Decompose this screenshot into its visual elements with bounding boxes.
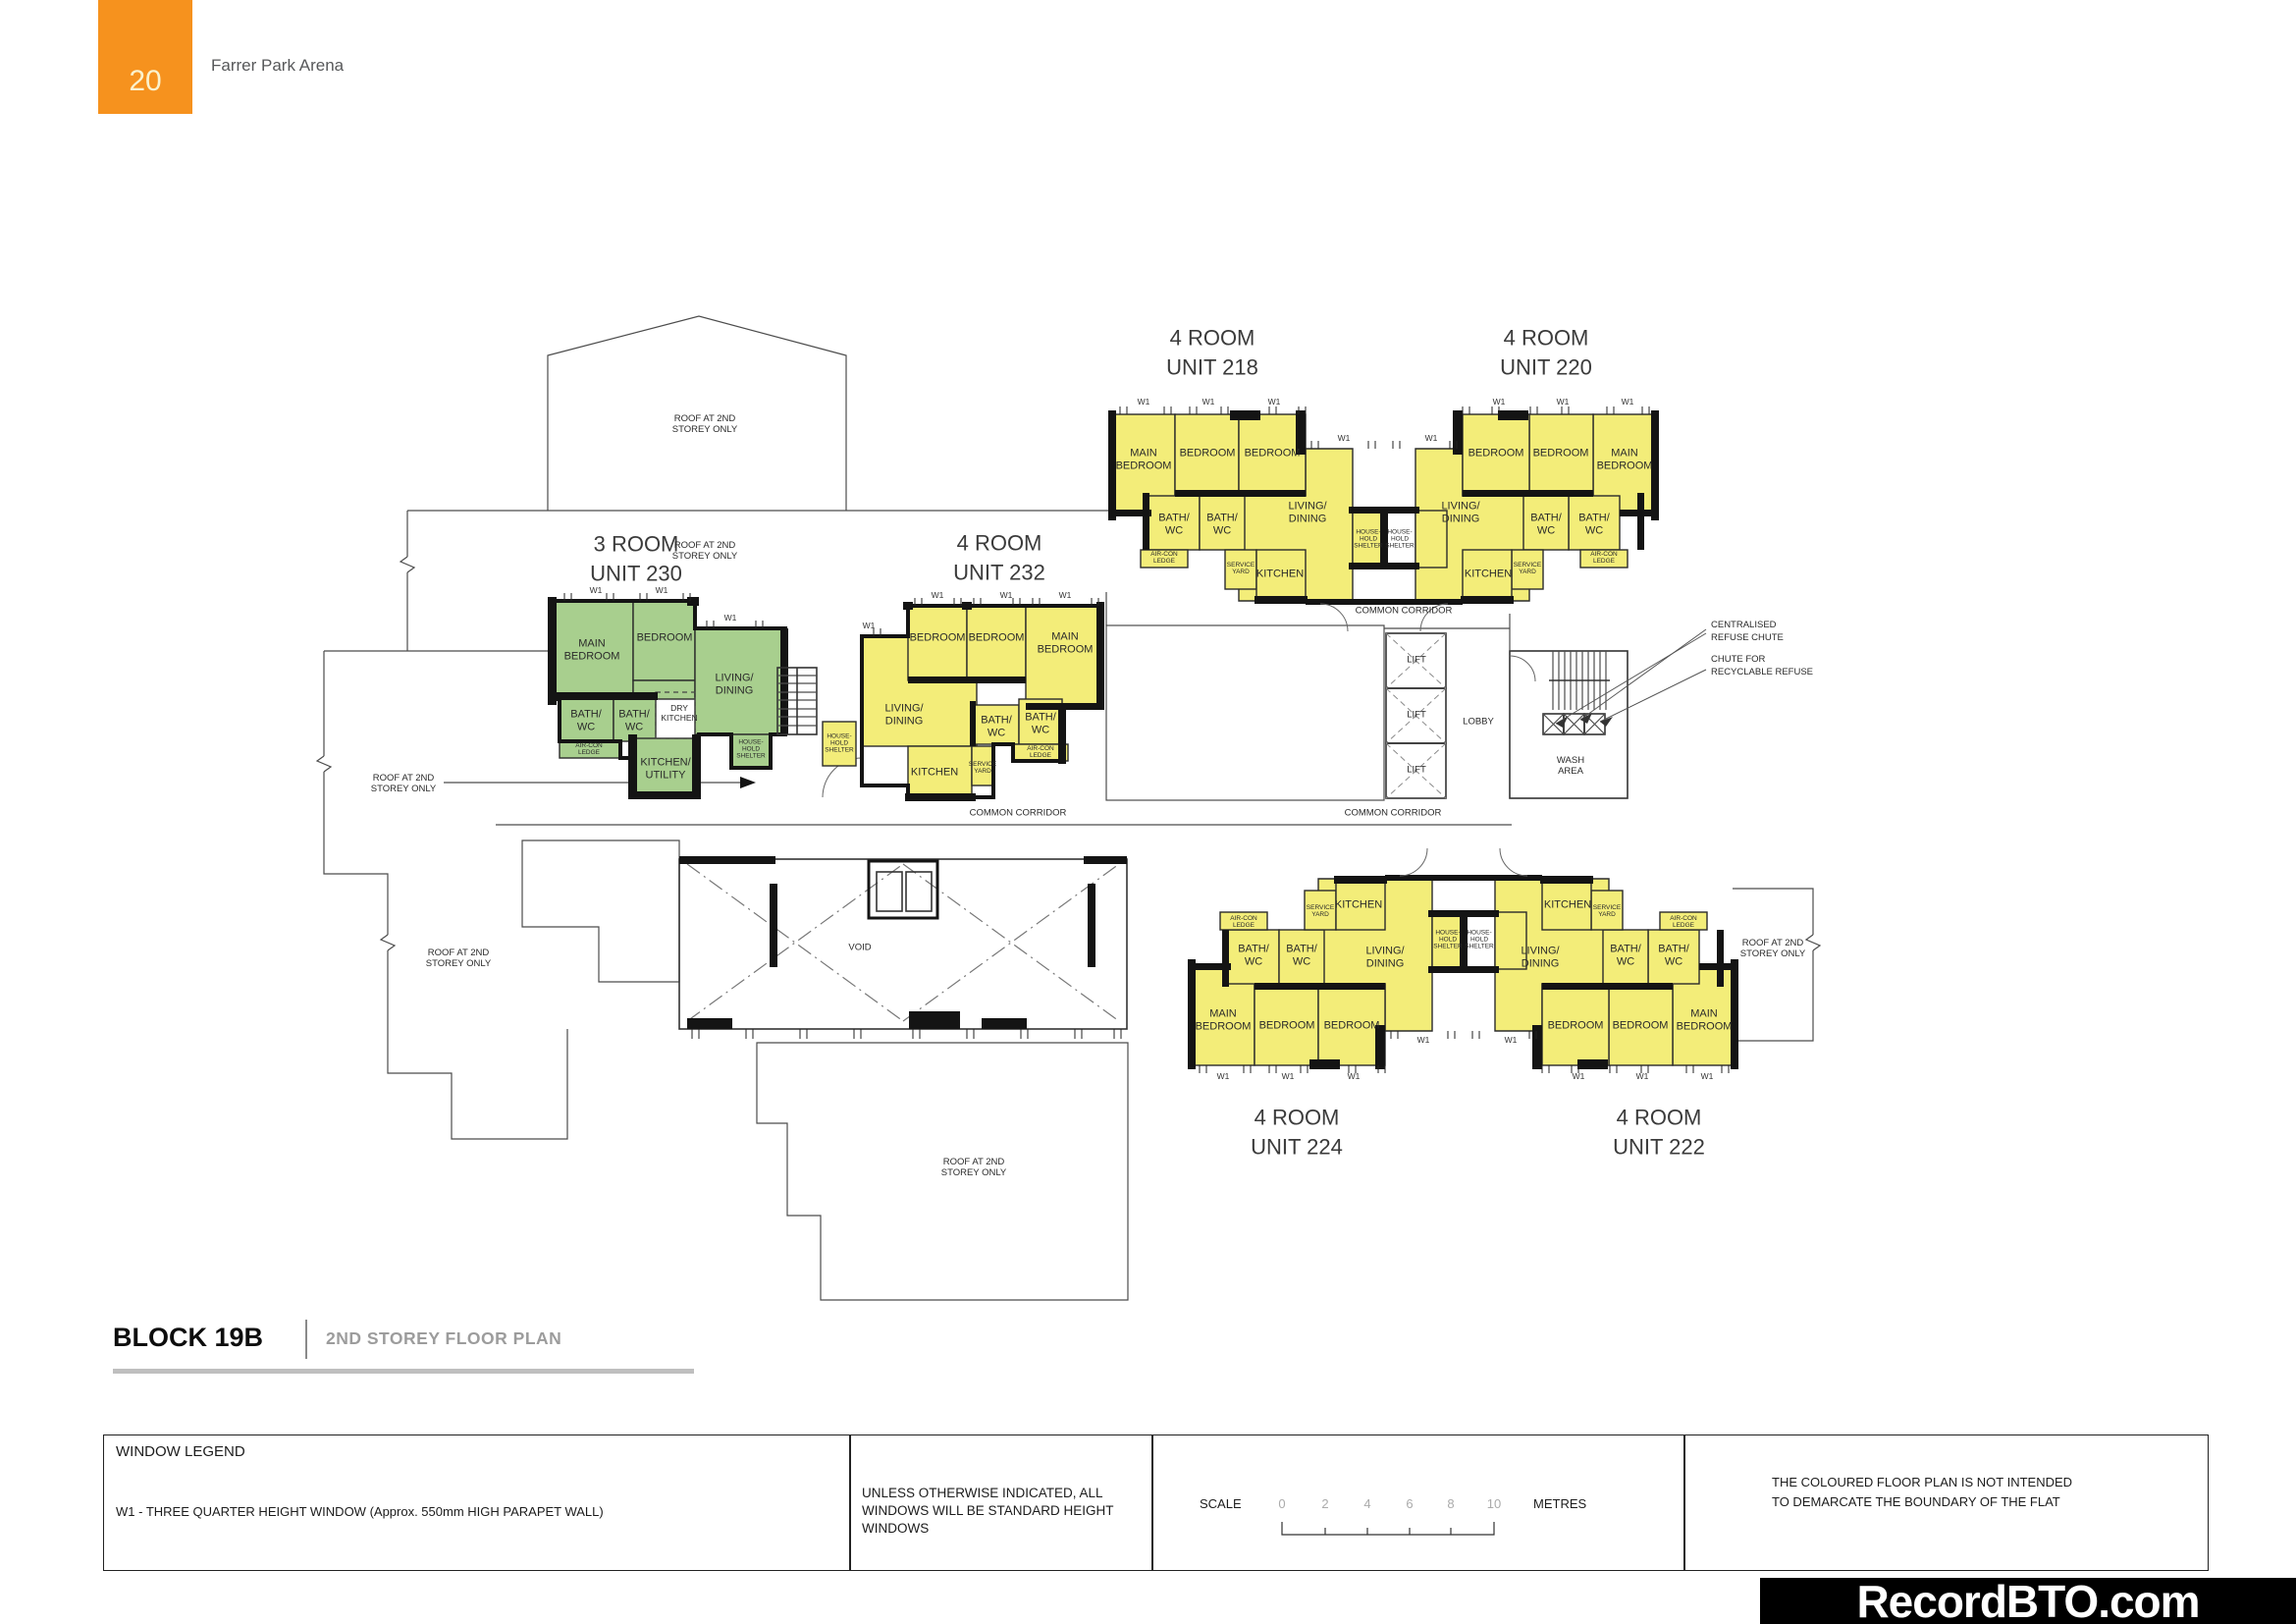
room-label-aircon-ledge: AIR-CON LEDGE	[1590, 551, 1617, 565]
room-label-household-shelter: HOUSE- HOLD SHELTER	[825, 732, 854, 753]
room-label-bedroom: BEDROOM	[1180, 448, 1236, 460]
roof-note: ROOF AT 2ND STOREY ONLY	[672, 541, 738, 563]
common-corridor-label: COMMON CORRIDOR	[1345, 809, 1442, 820]
wash-area-label: WASH AREA	[1557, 756, 1584, 778]
scale-tick: 2	[1321, 1496, 1328, 1511]
room-label-service-yard: SERVICE YARD	[1593, 904, 1621, 918]
room-label-household-shelter: HOUSE- HOLD SHELTER	[1433, 929, 1463, 949]
scale-tick: 4	[1363, 1496, 1370, 1511]
room-label-main-bedroom: MAIN BEDROOM	[1116, 447, 1172, 471]
window-tag: W1	[1701, 1072, 1714, 1082]
unit-title-218: 4 ROOM UNIT 218	[1166, 323, 1258, 381]
room-label-service-yard: SERVICE YARD	[1227, 562, 1255, 575]
lift-label: LIFT	[1407, 766, 1426, 777]
room-label-main-bedroom: MAIN BEDROOM	[1597, 447, 1653, 471]
window-tag: W1	[1417, 1036, 1430, 1046]
unit-type: 4 ROOM	[1251, 1103, 1343, 1132]
room-label-aircon-ledge: AIR-CON LEDGE	[1670, 915, 1696, 929]
room-label-kitchen: KITCHEN	[1544, 899, 1591, 912]
room-label-service-yard: SERVICE YARD	[969, 761, 996, 775]
room-label-bath-wc: BATH/ WC	[1578, 512, 1610, 536]
room-label-bath-wc: BATH/ WC	[570, 708, 602, 732]
window-tag: W1	[1138, 398, 1150, 407]
window-tag: W1	[1425, 434, 1438, 444]
room-label-living-dining: LIVING/ DINING	[884, 702, 923, 727]
roof-note: ROOF AT 2ND STOREY ONLY	[672, 414, 738, 436]
floor-plan-page: 20 Farrer Park Arena 4 ROOM UNIT 218 4 R…	[0, 0, 2296, 1624]
roof-note: ROOF AT 2ND STOREY ONLY	[371, 774, 437, 795]
window-tag: W1	[590, 586, 603, 596]
room-label-bedroom: BEDROOM	[1324, 1020, 1380, 1033]
roof-note: ROOF AT 2ND STOREY ONLY	[426, 948, 492, 970]
unit-block-224-222	[1188, 848, 1738, 1073]
unit-name: UNIT 232	[953, 558, 1045, 587]
floor-plan-drawing	[0, 0, 2296, 1624]
room-label-main-bedroom: MAIN BEDROOM	[1677, 1007, 1733, 1032]
lift-label: LIFT	[1407, 656, 1426, 667]
refuse-chutes	[1543, 714, 1605, 734]
room-label-main-bedroom: MAIN BEDROOM	[1196, 1007, 1252, 1032]
room-label-bath-wc: BATH/ WC	[1286, 943, 1317, 967]
room-label-kitchen: KITCHEN	[1256, 568, 1304, 581]
window-tag: W1	[1573, 1072, 1585, 1082]
plan-title: 2ND STOREY FLOOR PLAN	[326, 1328, 561, 1349]
unit-name: UNIT 218	[1166, 352, 1258, 382]
room-label-bath-wc: BATH/ WC	[1530, 512, 1562, 536]
window-tag: W1	[1505, 1036, 1518, 1046]
window-tag: W1	[1000, 591, 1013, 601]
window-tag: W1	[1268, 398, 1281, 407]
roof-note: ROOF AT 2ND STOREY ONLY	[941, 1158, 1007, 1179]
window-tag: W1	[724, 614, 737, 623]
room-label-main-bedroom: MAIN BEDROOM	[564, 637, 620, 662]
room-label-kitchen-utility: KITCHEN/ UTILITY	[640, 756, 690, 781]
room-label-bedroom: BEDROOM	[1613, 1020, 1669, 1033]
window-tag: W1	[1348, 1072, 1361, 1082]
room-label-kitchen: KITCHEN	[1335, 899, 1382, 912]
room-label-bath-wc: BATH/ WC	[1610, 943, 1641, 967]
window-tag: W1	[932, 591, 944, 601]
window-tag: W1	[1493, 398, 1506, 407]
room-label-aircon-ledge: AIR-CON LEDGE	[1150, 551, 1177, 565]
lift-label: LIFT	[1407, 711, 1426, 722]
watermark-banner: RecordBTO.com	[1760, 1578, 2296, 1624]
scale-tick: 10	[1487, 1496, 1501, 1511]
roof-note: ROOF AT 2ND STOREY ONLY	[1740, 939, 1806, 960]
room-label-service-yard: SERVICE YARD	[1307, 904, 1334, 918]
legend-separator	[1151, 1435, 1153, 1571]
room-label-bedroom: BEDROOM	[969, 632, 1025, 645]
unit-name: UNIT 222	[1613, 1132, 1705, 1162]
boundary-note: THE COLOURED FLOOR PLAN IS NOT INTENDED …	[1772, 1473, 2072, 1511]
scale-tick: 6	[1406, 1496, 1413, 1511]
window-tag: W1	[1557, 398, 1570, 407]
room-label-kitchen: KITCHEN	[911, 767, 958, 780]
roof-arrow	[444, 777, 756, 788]
void-label: VOID	[848, 944, 871, 954]
window-tag: W1	[863, 622, 876, 631]
scale-tick: 8	[1447, 1496, 1454, 1511]
room-label-household-shelter: HOUSE- HOLD SHELTER	[1354, 528, 1383, 549]
windows-note: UNLESS OTHERWISE INDICATED, ALL WINDOWS …	[862, 1485, 1114, 1539]
unit-title-224: 4 ROOM UNIT 224	[1251, 1103, 1343, 1161]
common-corridor-label: COMMON CORRIDOR	[1356, 607, 1453, 618]
room-label-household-shelter: HOUSE- HOLD SHELTER	[1465, 929, 1494, 949]
unit-type: 4 ROOM	[1500, 323, 1592, 352]
window-tag: W1	[1282, 1072, 1295, 1082]
room-label-bedroom: BEDROOM	[1468, 448, 1524, 460]
room-label-bedroom: BEDROOM	[1245, 448, 1301, 460]
room-label-bath-wc: BATH/ WC	[1238, 943, 1269, 967]
room-label-aircon-ledge: AIR-CON LEDGE	[1230, 915, 1256, 929]
legend-separator	[1683, 1435, 1685, 1571]
unit-name: UNIT 224	[1251, 1132, 1343, 1162]
window-legend-heading: WINDOW LEGEND	[116, 1443, 245, 1460]
title-divider	[305, 1320, 307, 1359]
window-tag: W1	[1202, 398, 1215, 407]
window-tag: W1	[1217, 1072, 1230, 1082]
centralised-refuse-chute-label: CENTRALISED REFUSE CHUTE	[1711, 619, 1784, 645]
room-label-bedroom: BEDROOM	[1533, 448, 1589, 460]
unit-title-230: 3 ROOM UNIT 230	[590, 529, 682, 587]
room-label-living-dining: LIVING/ DINING	[1441, 500, 1479, 524]
scale-tick: 0	[1278, 1496, 1285, 1511]
window-tag: W1	[656, 586, 668, 596]
room-label-bath-wc: BATH/ WC	[1025, 711, 1056, 735]
room-label-bath-wc: BATH/ WC	[1206, 512, 1238, 536]
chute-leaders	[1556, 629, 1706, 728]
unit-type: 4 ROOM	[1613, 1103, 1705, 1132]
unit-name: UNIT 220	[1500, 352, 1592, 382]
unit-type: 4 ROOM	[953, 528, 1045, 558]
room-label-bedroom: BEDROOM	[1259, 1020, 1315, 1033]
title-underline	[113, 1369, 694, 1374]
room-label-living-dining: LIVING/ DINING	[1521, 945, 1559, 969]
room-label-bedroom: BEDROOM	[910, 632, 966, 645]
room-label-aircon-ledge: AIR-CON LEDGE	[1027, 745, 1053, 759]
room-label-kitchen: KITCHEN	[1465, 568, 1512, 581]
unit-title-222: 4 ROOM UNIT 222	[1613, 1103, 1705, 1161]
room-label-service-yard: SERVICE YARD	[1514, 562, 1541, 575]
window-tag: W1	[1622, 398, 1634, 407]
unit-type: 4 ROOM	[1166, 323, 1258, 352]
block-title: BLOCK 19B	[113, 1323, 263, 1353]
room-label-bedroom: BEDROOM	[637, 632, 693, 645]
room-label-main-bedroom: MAIN BEDROOM	[1038, 630, 1094, 655]
window-tag: W1	[1338, 434, 1351, 444]
room-label-bath-wc: BATH/ WC	[618, 708, 650, 732]
room-label-bath-wc: BATH/ WC	[1158, 512, 1190, 536]
common-corridor-label: COMMON CORRIDOR	[970, 809, 1067, 820]
scale-unit: METRES	[1533, 1496, 1586, 1511]
unit-name: UNIT 230	[590, 559, 682, 588]
room-label-bath-wc: BATH/ WC	[981, 714, 1012, 738]
window-legend-w1: W1 - THREE QUARTER HEIGHT WINDOW (Approx…	[116, 1504, 604, 1519]
room-label-living-dining: LIVING/ DINING	[1365, 945, 1404, 969]
lobby-label: LOBBY	[1463, 718, 1494, 729]
page-number: 20	[98, 65, 192, 98]
project-name: Farrer Park Arena	[211, 56, 344, 76]
room-label-bath-wc: BATH/ WC	[1658, 943, 1689, 967]
room-label-living-dining: LIVING/ DINING	[715, 672, 753, 696]
unit-title-232: 4 ROOM UNIT 232	[953, 528, 1045, 586]
unit-block-218-220	[1108, 406, 1659, 631]
unit-type: 3 ROOM	[590, 529, 682, 559]
room-label-household-shelter: HOUSE- HOLD SHELTER	[736, 738, 766, 759]
room-label-bedroom: BEDROOM	[1548, 1020, 1604, 1033]
unit-title-220: 4 ROOM UNIT 220	[1500, 323, 1592, 381]
room-label-living-dining: LIVING/ DINING	[1288, 500, 1326, 524]
legend-separator	[849, 1435, 851, 1571]
recyclable-refuse-chute-label: CHUTE FOR RECYCLABLE REFUSE	[1711, 653, 1813, 679]
room-label-household-shelter: HOUSE- HOLD SHELTER	[1385, 528, 1415, 549]
scale-label: SCALE	[1200, 1496, 1242, 1511]
window-tag: W1	[1059, 591, 1072, 601]
room-label-aircon-ledge: AIR-CON LEDGE	[575, 742, 602, 756]
void-block	[679, 856, 1127, 1039]
window-tag: W1	[1636, 1072, 1649, 1082]
room-label-dry-kitchen: DRY KITCHEN	[661, 704, 697, 724]
